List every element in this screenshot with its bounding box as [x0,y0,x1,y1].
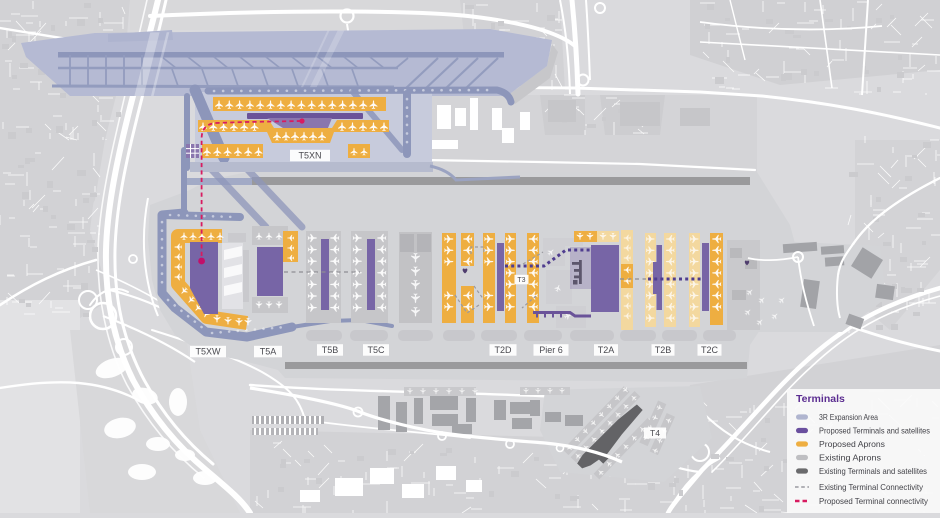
svg-text:T2B: T2B [655,345,672,355]
svg-text:T5XN: T5XN [298,151,321,161]
svg-text:Proposed Terminal connectivity: Proposed Terminal connectivity [819,496,929,506]
svg-text:T3: T3 [517,277,525,284]
svg-text:Pier 6: Pier 6 [539,345,563,355]
svg-text:T2D: T2D [494,345,512,355]
svg-text:Existing Aprons: Existing Aprons [819,453,881,463]
svg-text:T2C: T2C [701,345,719,355]
svg-text:T5C: T5C [367,345,385,355]
svg-text:Existing Terminals and satelli: Existing Terminals and satellites [819,466,927,476]
svg-text:T5XW: T5XW [195,347,221,357]
svg-text:T2A: T2A [598,345,615,355]
svg-text:T4: T4 [650,428,660,438]
svg-text:T5B: T5B [322,345,339,355]
svg-text:T5A: T5A [260,347,277,357]
svg-text:3R Expansion Area: 3R Expansion Area [819,412,878,422]
svg-text:Proposed Aprons: Proposed Aprons [819,439,885,449]
svg-text:Proposed Terminals and satelli: Proposed Terminals and satellites [819,426,930,436]
svg-text:Existing Terminal Connectivity: Existing Terminal Connectivity [819,482,924,492]
svg-text:Terminals: Terminals [796,393,845,405]
